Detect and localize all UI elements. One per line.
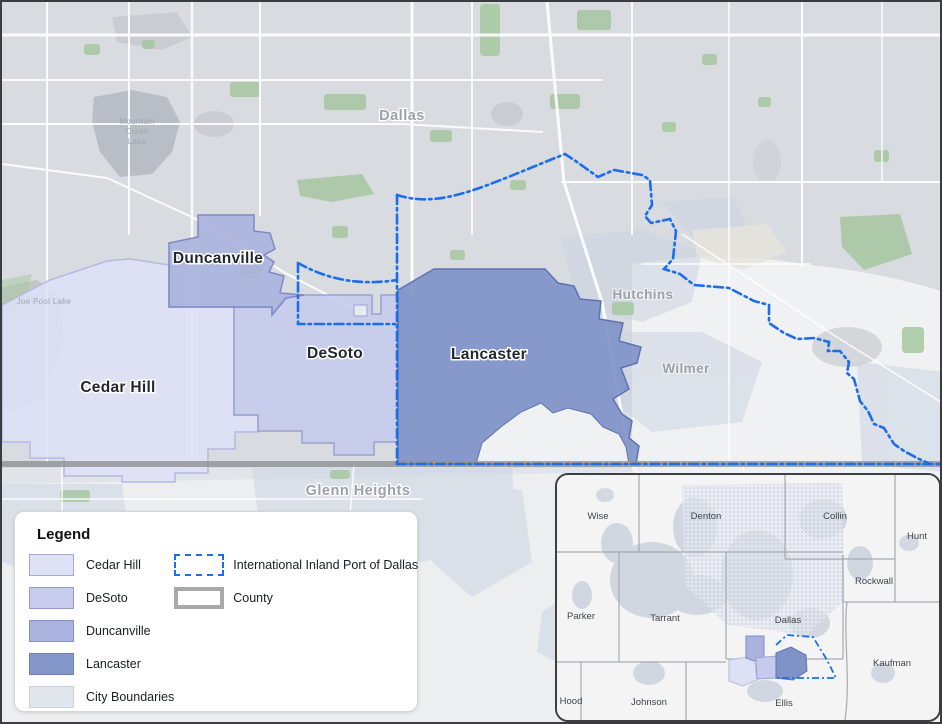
lancaster-swatch	[29, 653, 74, 675]
cedar-hill-swatch	[29, 554, 74, 576]
inset-county-denton: Denton	[691, 511, 722, 522]
legend-item-lancaster: Lancaster	[29, 652, 174, 675]
duncanville-label: Duncanville	[173, 250, 263, 267]
map-figure: Dallas Duncanville Cedar Hill DeSoto Lan…	[0, 0, 942, 724]
legend-item-county: County	[174, 586, 418, 609]
inset-locator-map: Wise Denton Collin Hunt Rockwall Parker …	[555, 473, 941, 722]
cedar-hill-label: Cedar Hill	[80, 379, 155, 396]
lancaster-label: Lancaster	[451, 346, 527, 363]
inset-county-dallas: Dallas	[775, 615, 802, 626]
joe-pool-lake-label: Joe Pool Lake	[17, 297, 72, 306]
svg-text:Mountain: Mountain	[119, 117, 154, 126]
city-boundaries-swatch	[29, 686, 74, 708]
legend-title: Legend	[37, 526, 403, 543]
inset-county-johnson: Johnson	[631, 697, 667, 708]
wilmer-label: Wilmer	[662, 361, 710, 376]
desoto-region	[234, 295, 398, 455]
desoto-swatch	[29, 587, 74, 609]
dallas-label: Dallas	[379, 108, 425, 124]
inset-county-collin: Collin	[823, 511, 847, 522]
inset-county-ellis: Ellis	[775, 698, 793, 709]
inset-county-kaufman: Kaufman	[873, 658, 911, 669]
duncanville-swatch	[29, 620, 74, 642]
port-boundary-swatch	[174, 554, 224, 576]
inset-county-wise: Wise	[587, 511, 608, 522]
glenn-heights-label: Glenn Heights	[306, 483, 411, 499]
inset-county-hood: Hood	[560, 696, 583, 707]
legend-item-desoto: DeSoto	[29, 586, 174, 609]
county-swatch	[174, 587, 224, 609]
inset-county-rockwall: Rockwall	[855, 576, 893, 587]
svg-text:Lake: Lake	[128, 137, 147, 146]
inset-canvas: Wise Denton Collin Hunt Rockwall Parker …	[557, 475, 939, 720]
desoto-label: DeSoto	[307, 345, 363, 362]
hutchins-label: Hutchins	[613, 287, 674, 302]
legend-item-city-boundaries: City Boundaries	[29, 685, 174, 708]
legend-item-duncanville: Duncanville	[29, 619, 174, 642]
desoto-enclave	[354, 305, 367, 316]
inset-county-hunt: Hunt	[907, 531, 927, 542]
inset-county-parker: Parker	[567, 611, 595, 622]
legend-item-cedar-hill: Cedar Hill	[29, 553, 174, 576]
legend-panel: Legend Cedar Hill DeSoto Duncanville Lan…	[14, 511, 418, 712]
svg-text:Creek: Creek	[126, 127, 150, 136]
legend-item-port: International Inland Port of Dallas	[174, 553, 418, 576]
inset-county-tarrant: Tarrant	[650, 613, 680, 624]
